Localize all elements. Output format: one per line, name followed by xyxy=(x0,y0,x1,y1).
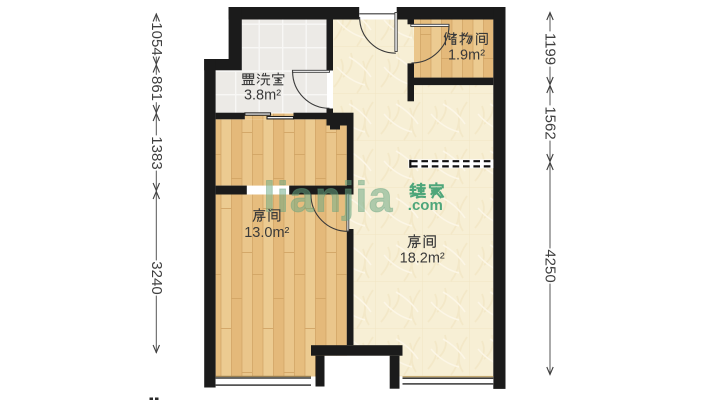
svg-text:lianjia: lianjia xyxy=(264,175,394,222)
svg-text:1.9m²: 1.9m² xyxy=(448,48,485,64)
svg-text:1199: 1199 xyxy=(542,33,559,65)
svg-text:1054: 1054 xyxy=(148,22,165,55)
svg-text:861: 861 xyxy=(148,76,165,101)
svg-text:13.0m²: 13.0m² xyxy=(244,225,289,241)
svg-text:3240: 3240 xyxy=(148,261,165,294)
svg-text:3.8m²: 3.8m² xyxy=(244,88,281,104)
svg-text:1562: 1562 xyxy=(542,106,559,139)
svg-text:4250: 4250 xyxy=(542,249,559,282)
svg-text:1383: 1383 xyxy=(148,136,165,169)
svg-text:.com: .com xyxy=(408,197,443,214)
svg-text:18.2m²: 18.2m² xyxy=(400,250,445,266)
